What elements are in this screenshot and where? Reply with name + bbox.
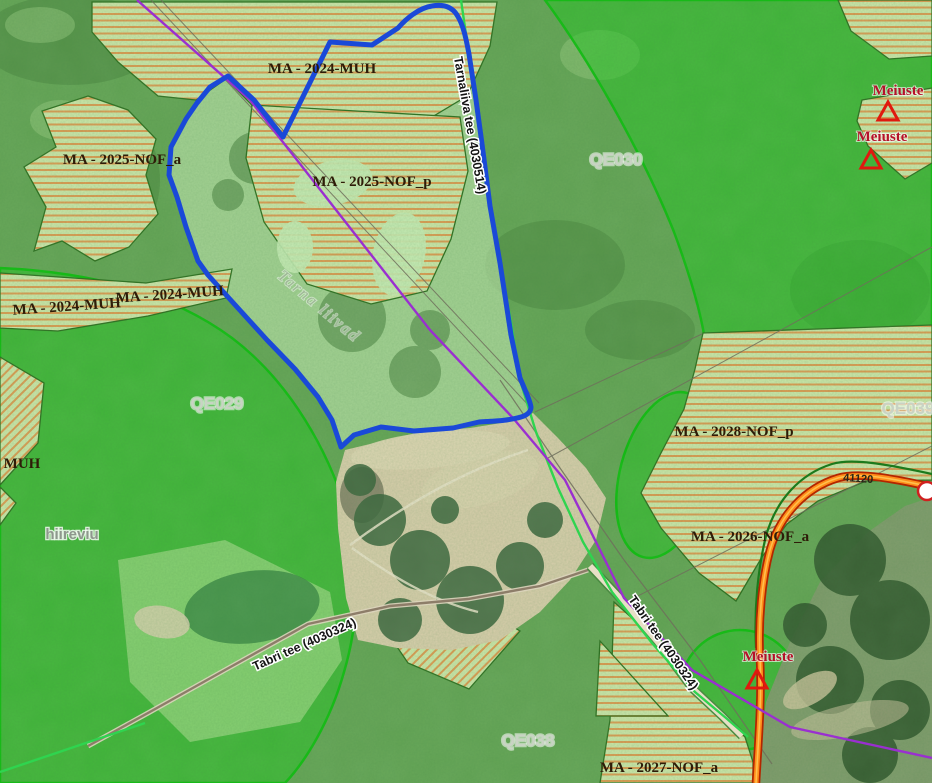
zone-label: MA - 2028-NOF_p bbox=[674, 424, 793, 440]
zone-label: MA - 2025-NOF_a bbox=[63, 152, 182, 168]
area-code-label: QE029 bbox=[191, 394, 244, 413]
poi-label: Meiuste bbox=[857, 129, 908, 145]
area-code-label: QE039 bbox=[882, 399, 932, 418]
road-number-shield bbox=[918, 482, 932, 500]
area-code-label: QE038 bbox=[502, 731, 555, 750]
poi-label: Meiuste bbox=[873, 83, 924, 99]
zone-label: MUH bbox=[4, 456, 41, 472]
area-code-label: QE030 bbox=[590, 150, 643, 169]
zone-label: MA - 2024-MUH bbox=[268, 61, 377, 77]
map-canvas[interactable]: MA - 2024-MUHMA - 2025-NOF_pMA - 2025-NO… bbox=[0, 0, 932, 783]
poi-label: Meiuste bbox=[743, 649, 794, 665]
zone-label: MA - 2026-NOF_a bbox=[691, 529, 810, 545]
map-viewport[interactable]: MA - 2024-MUHMA - 2025-NOF_pMA - 2025-NO… bbox=[0, 0, 932, 783]
road-ref-label: 41120 bbox=[843, 472, 874, 486]
place-label: hiireviu bbox=[45, 526, 98, 543]
zone-label: MA - 2027-NOF_a bbox=[600, 760, 719, 776]
zone-label: MA - 2025-NOF_p bbox=[312, 174, 431, 190]
